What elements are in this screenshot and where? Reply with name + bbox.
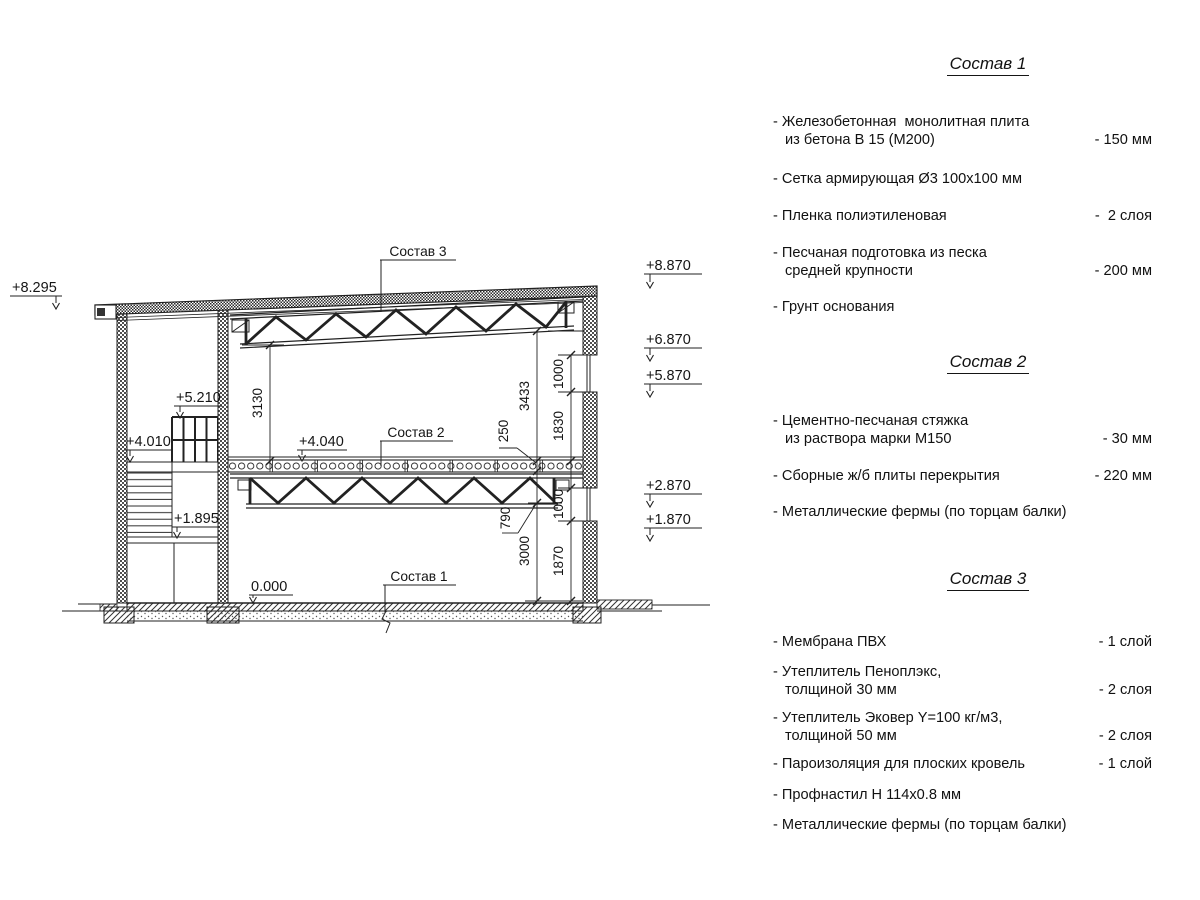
elevation-5210: +5.210 bbox=[174, 390, 222, 418]
material-item: - Железобетонная монолитная плита из бет… bbox=[773, 113, 1152, 150]
staircase bbox=[122, 462, 218, 603]
stair-railing bbox=[172, 417, 218, 462]
dim-790: 790 bbox=[498, 507, 513, 530]
svg-text:+8.870: +8.870 bbox=[646, 258, 691, 274]
material-value: - 2 слоя bbox=[1099, 727, 1152, 745]
svg-text:+5.210: +5.210 bbox=[176, 390, 221, 406]
elevation-4010: +4.010 bbox=[124, 434, 172, 462]
svg-text:+1.870: +1.870 bbox=[646, 512, 691, 528]
material-item: - Металлические фермы (по торцам балки) bbox=[773, 503, 1152, 521]
floor-slab bbox=[228, 457, 583, 472]
elevation-6870: +6.870 bbox=[644, 332, 702, 361]
material-value: - 200 мм bbox=[1095, 262, 1152, 280]
material-value: - 150 мм bbox=[1095, 131, 1152, 149]
elevation-8870: +8.870 bbox=[644, 258, 702, 288]
svg-text:Состав 2: Состав 2 bbox=[387, 425, 444, 440]
dim-3000: 3000 bbox=[517, 536, 532, 566]
elevation-1870: +1.870 bbox=[644, 512, 702, 541]
svg-text:+4.040: +4.040 bbox=[299, 434, 344, 450]
material-label: - Пароизоляция для плоских кровель bbox=[773, 755, 1025, 773]
material-item: - Сборные ж/б плиты перекрытия - 220 мм bbox=[773, 467, 1152, 485]
dim-1830: 1830 bbox=[551, 411, 566, 441]
dim-1870: 1870 bbox=[551, 546, 566, 576]
section-title-sostav-2: Состав 2 bbox=[792, 352, 1184, 372]
material-label: - Профнастил Н 114x0.8 мм bbox=[773, 786, 961, 804]
drawing-sheet: 3130 3433 250 790 3000 1000 1830 1000 18… bbox=[0, 0, 1200, 900]
material-label: - Сетка армирующая Ø3 100x100 мм bbox=[773, 170, 1022, 188]
material-value: - 1 слой bbox=[1099, 633, 1152, 651]
material-item: - Металлические фермы (по торцам балки) bbox=[773, 816, 1152, 834]
material-label: - Утеплитель Пеноплэкс, bbox=[773, 663, 941, 681]
material-label: - Сборные ж/б плиты перекрытия bbox=[773, 467, 1000, 485]
svg-text:Состав 1: Состав 1 bbox=[390, 569, 447, 584]
dim-1000-bottom: 1000 bbox=[551, 489, 566, 519]
material-label: - Цементно-песчаная стяжка bbox=[773, 412, 968, 430]
svg-text:+4.010: +4.010 bbox=[126, 434, 171, 450]
elevation-2870: +2.870 bbox=[644, 478, 702, 507]
section-title-sostav-1: Состав 1 bbox=[792, 54, 1184, 74]
svg-text:+6.870: +6.870 bbox=[646, 332, 691, 348]
svg-text:+2.870: +2.870 bbox=[646, 478, 691, 494]
material-item: - Утеплитель Эковер Y=100 кг/м3, толщино… bbox=[773, 709, 1152, 746]
material-value: - 220 мм bbox=[1095, 467, 1152, 485]
material-label: - Пленка полиэтиленовая bbox=[773, 207, 947, 225]
material-label: - Утеплитель Эковер Y=100 кг/м3, bbox=[773, 709, 1002, 727]
svg-text:+5.870: +5.870 bbox=[646, 368, 691, 384]
elevation-5870: +5.870 bbox=[644, 368, 702, 397]
materials-panel: Состав 1 - Железобетонная монолитная пли… bbox=[770, 0, 1162, 900]
material-item: - Сетка армирующая Ø3 100x100 мм bbox=[773, 170, 1152, 188]
material-label: - Металлические фермы (по торцам балки) bbox=[773, 503, 1067, 521]
material-label: - Металлические фермы (по торцам балки) bbox=[773, 816, 1067, 834]
ground-and-foundation bbox=[62, 600, 710, 633]
material-label: - Железобетонная монолитная плита bbox=[773, 113, 1029, 131]
material-value: - 30 мм bbox=[1103, 430, 1152, 448]
svg-text:0.000: 0.000 bbox=[251, 579, 287, 595]
roof bbox=[95, 286, 597, 321]
elevation-8295: +8.295 bbox=[10, 280, 62, 309]
elevation-0000: 0.000 bbox=[249, 579, 293, 603]
material-item: - Песчаная подготовка из песка средней к… bbox=[773, 244, 1152, 281]
svg-text:+8.295: +8.295 bbox=[12, 280, 57, 296]
material-item: - Мембрана ПВХ - 1 слой bbox=[773, 633, 1152, 651]
dim-3130: 3130 bbox=[250, 388, 265, 418]
dim-250: 250 bbox=[496, 420, 511, 443]
material-item: - Пароизоляция для плоских кровель - 1 с… bbox=[773, 755, 1152, 773]
material-item: - Грунт основания bbox=[773, 298, 1152, 316]
elevation-1895: +1.895 bbox=[172, 511, 220, 538]
material-label: - Грунт основания bbox=[773, 298, 894, 316]
material-item: - Пленка полиэтиленовая - 2 слоя bbox=[773, 207, 1152, 225]
material-value: - 1 слой bbox=[1099, 755, 1152, 773]
material-label: - Песчаная подготовка из песка bbox=[773, 244, 987, 262]
material-item: - Утеплитель Пеноплэкс, толщиной 30 мм -… bbox=[773, 663, 1152, 700]
dim-3433: 3433 bbox=[517, 381, 532, 411]
material-item: - Профнастил Н 114x0.8 мм bbox=[773, 786, 1152, 804]
material-item: - Цементно-песчаная стяжка из раствора м… bbox=[773, 412, 1152, 449]
dim-1000-top: 1000 bbox=[551, 359, 566, 389]
material-value: - 2 слоя bbox=[1099, 681, 1152, 699]
svg-text:Состав 3: Состав 3 bbox=[389, 244, 447, 259]
material-value: - 2 слоя bbox=[1095, 207, 1152, 225]
section-title-sostav-3: Состав 3 bbox=[792, 569, 1184, 589]
svg-text:+1.895: +1.895 bbox=[174, 511, 219, 527]
material-label: - Мембрана ПВХ bbox=[773, 633, 886, 651]
